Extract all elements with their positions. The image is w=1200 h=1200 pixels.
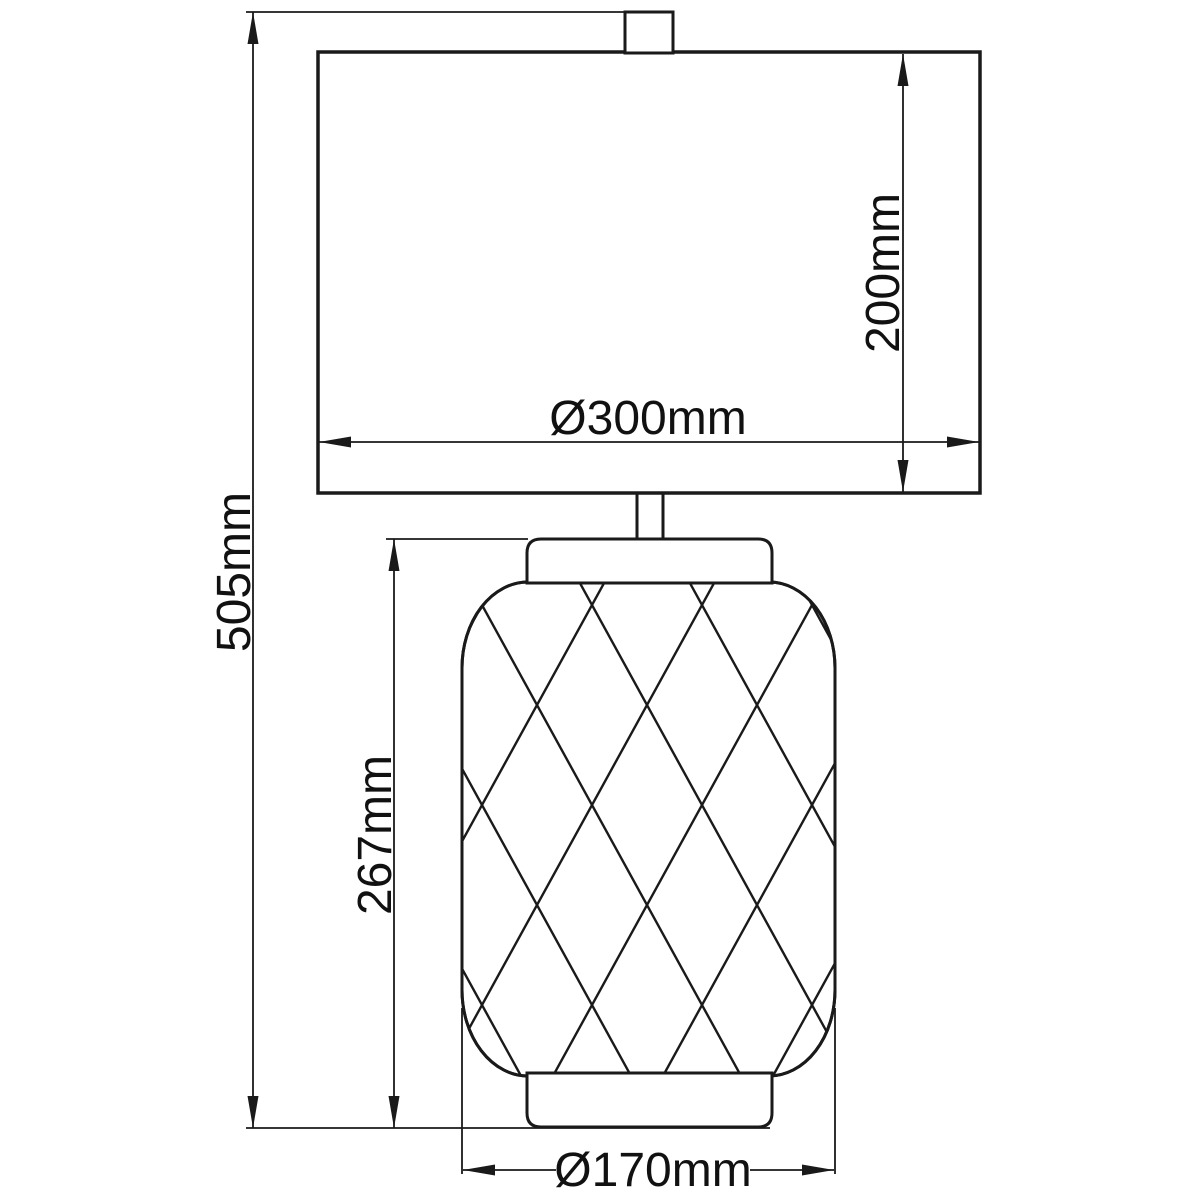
- dimension-label-shade-height: 200mm: [857, 193, 910, 353]
- arrow-down-icon: [389, 1096, 400, 1128]
- arrow-left-icon: [463, 1165, 495, 1176]
- base-neck-cap: [527, 539, 772, 583]
- dimension-label-shade-diameter: Ø300mm: [549, 392, 746, 445]
- arrow-up-icon: [389, 539, 400, 571]
- dimension-label-base-diameter: Ø170mm: [554, 1144, 751, 1197]
- dimension-label-overall-height: 505mm: [208, 492, 261, 652]
- arrow-right-icon: [802, 1165, 834, 1176]
- lamp-dimension-drawing: 505mm 267mm 200mm Ø300mm Ø170mm: [0, 0, 1200, 1200]
- base-plinth: [527, 1073, 772, 1127]
- arrow-up-icon: [248, 12, 259, 44]
- lamp-stem: [637, 493, 663, 539]
- arrow-down-icon: [248, 1096, 259, 1128]
- diamond-lattice-pattern: [462, 582, 835, 1076]
- dimension-label-base-height: 267mm: [349, 755, 402, 915]
- lamp-base-body: [462, 582, 835, 1076]
- finial-block: [625, 12, 673, 53]
- drawing-svg: 505mm 267mm 200mm Ø300mm Ø170mm: [0, 0, 1200, 1200]
